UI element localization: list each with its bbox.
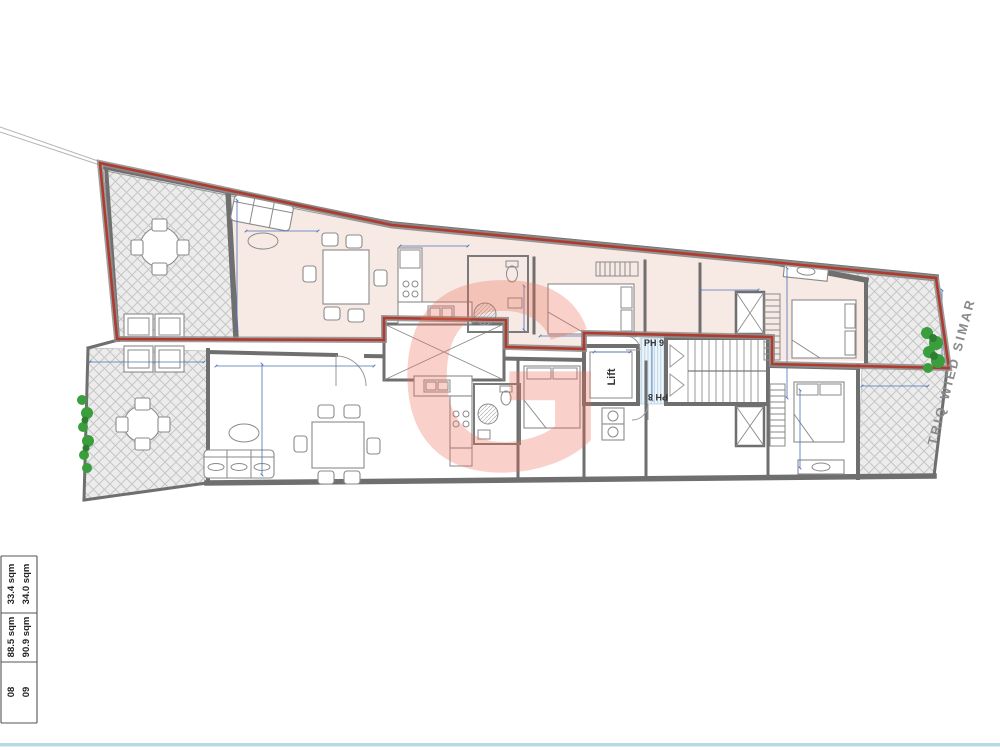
shaft-upper [736,292,764,334]
area-row2-internal: 90.9 sqm [21,617,32,658]
staircase [666,338,768,404]
area-row1-internal: 88.5 sqm [6,617,17,658]
bed-ph8-bedroom4 [794,382,844,442]
floor-plan-drawing: G PH 9 PH 8 Lift TRIQ WIED SIMAR 33.4 sq… [0,0,1000,750]
label-ph8: PH 8 [648,392,668,402]
ac-unit-ph8 [798,460,844,474]
sofa-ph8 [204,450,274,478]
site-boundary-lines [0,127,100,165]
bed-ph9-bedroom2 [792,300,856,358]
area-row1-external: 33.4 sqm [6,564,17,605]
area-row1-unit: 08 [6,687,17,698]
label-ph9: PH 9 [644,338,664,348]
area-row2-unit: 09 [21,687,32,698]
area-table: 33.4 sqm 34.0 sqm 88.5 sqm 90.9 sqm 08 0… [1,556,37,723]
shaft-lower [736,406,764,446]
label-lift: Lift [606,368,618,385]
footer-divider-line [0,743,1000,747]
area-row2-external: 34.0 sqm [21,564,32,605]
floor-plan-canvas: G PH 9 PH 8 Lift TRIQ WIED SIMAR 33.4 sq… [0,0,1000,750]
watermark-logo: G [396,224,608,528]
